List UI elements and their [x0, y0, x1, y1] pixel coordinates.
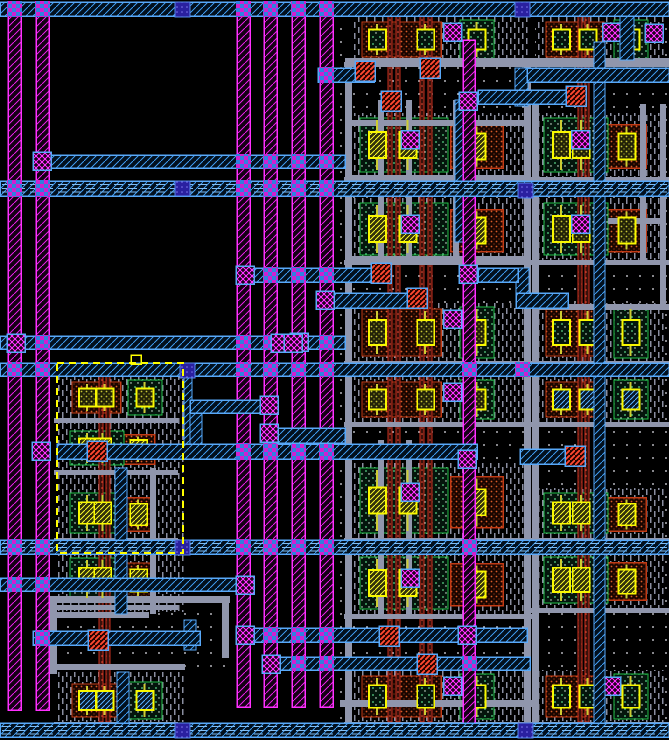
metal1-rail — [292, 16, 305, 707]
metal1-route — [50, 596, 230, 603]
m1-m2-overlap — [35, 335, 50, 350]
ic-layout-drawing[interactable] — [0, 0, 669, 740]
m1-m2-overlap — [291, 154, 306, 169]
m1-m2-overlap — [263, 362, 278, 377]
m1-m2-overlap — [319, 335, 334, 350]
contact — [130, 504, 147, 526]
m2-m3-via — [175, 723, 190, 738]
contact — [369, 570, 386, 596]
contact — [369, 390, 386, 410]
m1-m2-overlap — [291, 539, 306, 555]
metal2-band — [0, 363, 669, 376]
metal1-route — [222, 596, 229, 658]
m1-m2-overlap — [263, 267, 278, 283]
m1-m2-overlap — [236, 443, 251, 460]
contact — [623, 320, 640, 345]
m1-m2-overlap — [263, 627, 278, 643]
metal2-stub — [620, 16, 634, 60]
m1-m2-overlap — [7, 362, 22, 377]
m1-m2-via — [260, 424, 278, 442]
contact — [417, 30, 434, 50]
m1-m2-overlap — [319, 67, 334, 83]
m1-m2-via — [401, 569, 419, 587]
m1-m2-via — [401, 215, 419, 233]
contact — [137, 389, 154, 407]
contact — [79, 691, 96, 710]
contact — [417, 320, 434, 345]
substrate-contact — [566, 86, 586, 106]
substrate-contact — [355, 61, 375, 81]
metal1-route — [345, 175, 531, 181]
substrate-contact — [379, 626, 399, 646]
substrate-contact — [565, 446, 585, 466]
m1-m2-overlap — [35, 630, 50, 646]
m1-m2-overlap — [319, 539, 334, 555]
m1-m2-overlap — [7, 1, 22, 17]
m1-m2-overlap — [515, 362, 530, 377]
layers-root — [0, 0, 669, 740]
m1-m2-via — [236, 576, 254, 594]
metal2-band — [478, 268, 518, 282]
m1-m2-overlap — [462, 362, 477, 377]
substrate-contact — [381, 91, 401, 111]
contact — [553, 502, 570, 524]
metal2-band — [190, 400, 264, 413]
substrate-contact — [371, 263, 391, 283]
m1-m2-overlap — [263, 180, 278, 197]
metal1-route — [660, 104, 666, 304]
m1-m2-overlap — [291, 1, 306, 17]
m1-m2-via — [444, 23, 462, 41]
m1-m2-overlap — [319, 154, 334, 169]
m2-m3-via — [515, 2, 530, 17]
contact — [573, 568, 590, 592]
metal1-route — [524, 58, 531, 722]
metal1-route — [345, 256, 531, 262]
m1-m2-via — [7, 334, 25, 352]
metal2-band — [527, 68, 669, 82]
contact — [618, 569, 635, 593]
metal1-route — [345, 58, 352, 722]
metal1-route — [344, 614, 536, 619]
metal2-stub — [117, 672, 129, 723]
m1-m2-via — [284, 334, 302, 352]
m1-m2-overlap — [236, 335, 251, 350]
m1-m2-overlap — [291, 656, 306, 671]
contact — [417, 685, 434, 708]
contact — [97, 691, 114, 710]
m1-m2-overlap — [7, 577, 22, 592]
m1-m2-via — [262, 655, 280, 673]
m1-m2-overlap — [35, 1, 50, 17]
m1-m2-overlap — [291, 627, 306, 643]
m1-m2-overlap — [319, 1, 334, 17]
m1-m2-via — [603, 23, 621, 41]
metal2-stub — [594, 42, 605, 723]
contact — [573, 502, 590, 524]
metal1-rail — [320, 16, 333, 707]
contact — [94, 502, 111, 524]
metal2-band — [0, 2, 669, 16]
m1-m2-via — [444, 310, 462, 328]
m1-m2-overlap — [291, 362, 306, 377]
metal2-band — [478, 90, 568, 104]
m1-m2-via — [572, 215, 590, 233]
substrate-contact — [88, 630, 108, 650]
m1-m2-overlap — [291, 443, 306, 460]
metal2-band — [33, 631, 200, 645]
contact — [369, 30, 386, 50]
m1-m2-overlap — [35, 577, 50, 592]
m1-m2-overlap — [236, 180, 251, 197]
m1-m2-via — [458, 626, 476, 644]
metal1-rail — [237, 16, 250, 707]
metal1-route — [344, 422, 536, 427]
m1-m2-overlap — [35, 180, 50, 197]
substrate-contact — [407, 288, 427, 308]
m1-m2-overlap — [263, 443, 278, 460]
contact — [623, 390, 640, 410]
contact — [553, 132, 570, 158]
contact — [623, 685, 640, 708]
metal1-route — [54, 418, 178, 423]
contact — [97, 389, 114, 407]
m1-m2-via — [459, 92, 477, 110]
m1-m2-overlap — [319, 180, 334, 197]
m1-m2-via — [444, 383, 462, 401]
m1-m2-via — [32, 442, 50, 460]
layout-editor-canvas[interactable] — [0, 0, 669, 740]
m1-m2-via — [401, 131, 419, 149]
metal1-route — [345, 120, 531, 126]
metal2-stub — [115, 468, 127, 542]
m1-m2-overlap — [35, 539, 50, 555]
m1-m2-overlap — [319, 267, 334, 283]
contact — [553, 216, 570, 242]
contact — [618, 504, 635, 526]
m1-m2-via — [236, 626, 254, 644]
m1-m2-overlap — [319, 362, 334, 377]
m2-m3-via — [175, 181, 190, 196]
m1-m2-overlap — [462, 539, 477, 555]
metal2-band — [516, 293, 568, 308]
m1-m2-overlap — [236, 539, 251, 555]
m2-m3-via — [518, 723, 533, 738]
m1-m2-overlap — [263, 1, 278, 17]
metal1-rail — [463, 40, 475, 723]
contact — [553, 320, 570, 345]
m1-m2-via — [401, 483, 419, 501]
contact — [553, 390, 570, 410]
contact — [137, 691, 154, 710]
m1-m2-overlap — [462, 656, 477, 671]
m1-m2-overlap — [319, 627, 334, 643]
m1-m2-overlap — [7, 180, 22, 197]
m1-m2-overlap — [291, 180, 306, 197]
m1-m2-via — [645, 24, 663, 42]
substrate-contact — [417, 654, 437, 674]
m1-m2-via — [260, 396, 278, 414]
metal1-route — [57, 664, 185, 670]
contact — [79, 389, 96, 407]
contact — [553, 685, 570, 708]
m1-m2-via — [459, 265, 477, 283]
m1-m2-overlap — [35, 362, 50, 377]
m1-m2-overlap — [7, 539, 22, 555]
contact — [553, 30, 570, 50]
metal2-band — [277, 428, 345, 443]
m1-m2-via — [444, 677, 462, 695]
contact — [369, 216, 386, 242]
m2-m3-via — [175, 2, 190, 17]
contact — [369, 488, 386, 514]
contact — [553, 568, 570, 592]
m1-m2-overlap — [263, 539, 278, 555]
substrate-contact — [87, 441, 107, 461]
m1-m2-overlap — [319, 443, 334, 460]
m1-m2-via — [316, 291, 334, 309]
contact — [369, 320, 386, 345]
m1-m2-overlap — [291, 267, 306, 283]
contact — [618, 218, 635, 244]
substrate-contact — [420, 58, 440, 78]
m1-m2-overlap — [263, 154, 278, 169]
m1-m2-via — [33, 152, 51, 170]
m1-m2-overlap — [236, 362, 251, 377]
m2-m3-via — [518, 183, 533, 198]
metal2-band — [520, 449, 566, 464]
contact — [417, 390, 434, 410]
contact — [369, 685, 386, 708]
m1-m2-via — [572, 131, 590, 149]
m1-m2-overlap — [319, 656, 334, 671]
contact — [618, 134, 635, 160]
metal1-route — [57, 612, 149, 618]
m1-m2-overlap — [236, 1, 251, 17]
m1-m2-overlap — [236, 154, 251, 169]
contact — [369, 132, 386, 158]
m1-m2-via — [236, 266, 254, 284]
metal1-rail — [264, 16, 277, 707]
m1-m2-via — [458, 450, 476, 468]
